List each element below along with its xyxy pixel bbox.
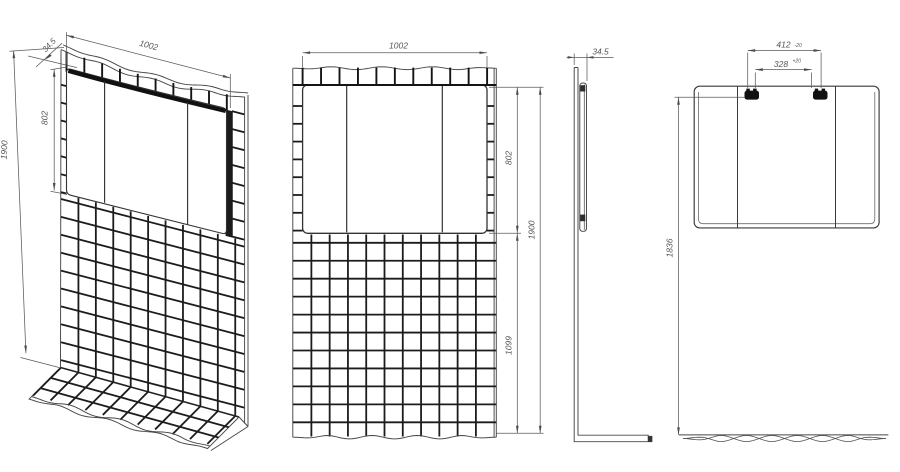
svg-text:1002: 1002 [138,38,159,53]
svg-text:1099: 1099 [504,336,514,355]
svg-text:+20: +20 [793,59,802,65]
svg-text:1900: 1900 [527,220,537,239]
svg-text:328: 328 [774,59,788,69]
svg-text:1900: 1900 [0,140,9,160]
svg-text:-20: -20 [795,43,802,49]
svg-text:802: 802 [40,111,50,125]
svg-text:802: 802 [504,151,514,165]
svg-text:34.5: 34.5 [41,36,59,54]
svg-text:1002: 1002 [389,41,408,51]
svg-text:412: 412 [776,40,790,50]
svg-text:34.5: 34.5 [592,47,609,57]
svg-text:1836: 1836 [665,238,675,257]
